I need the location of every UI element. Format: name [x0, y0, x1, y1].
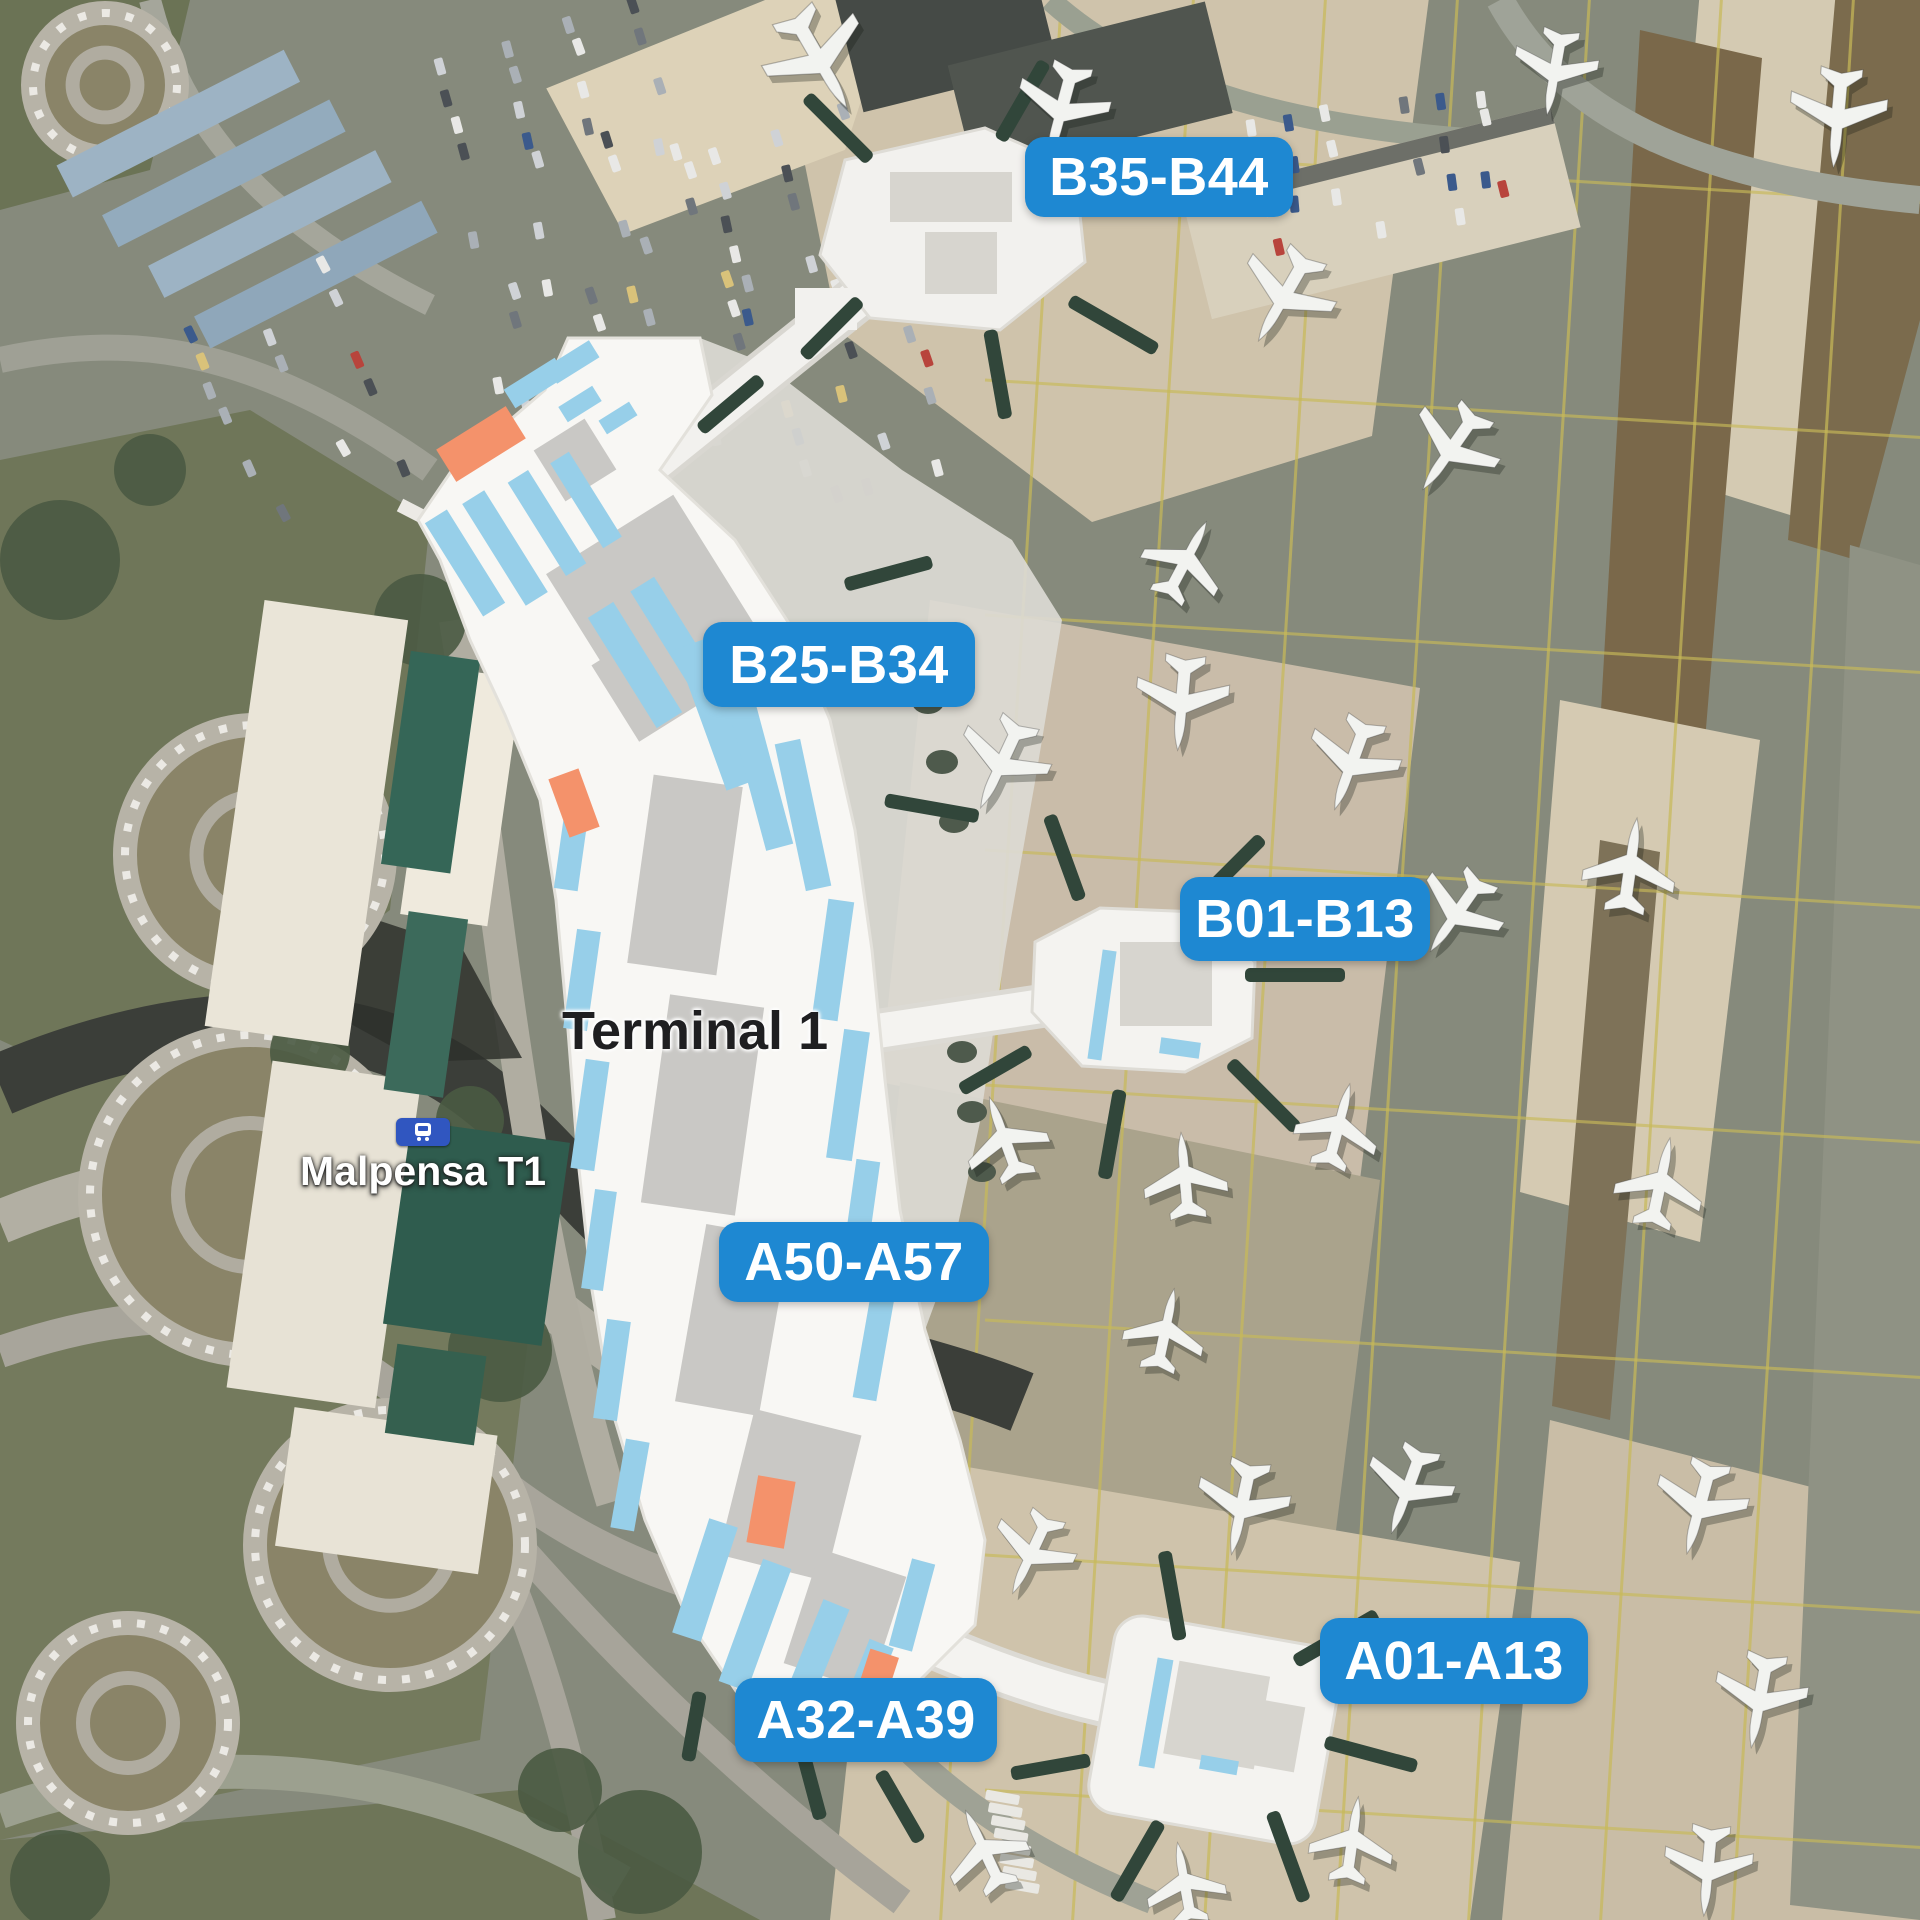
- gate-badge-label: A01-A13: [1344, 1630, 1564, 1692]
- gate-badge-label: B01-B13: [1195, 888, 1415, 950]
- station-label: Malpensa T1: [300, 1148, 546, 1195]
- map-canvas[interactable]: Terminal 1 Malpensa T1 B35-B44B25-B34B01…: [0, 0, 1920, 1920]
- gate-badge-A50-A57[interactable]: A50-A57: [719, 1222, 989, 1302]
- gate-badge-label: A32-A39: [756, 1689, 976, 1751]
- transit-train-icon: [396, 1118, 450, 1146]
- gate-badge-B35-B44[interactable]: B35-B44: [1025, 137, 1293, 217]
- station-malpensa-t1[interactable]: Malpensa T1: [300, 1118, 546, 1195]
- gate-badge-B01-B13[interactable]: B01-B13: [1180, 877, 1430, 961]
- gate-badge-A32-A39[interactable]: A32-A39: [735, 1678, 997, 1762]
- gate-badge-B25-B34[interactable]: B25-B34: [703, 622, 975, 707]
- gate-badge-label: B25-B34: [729, 634, 949, 696]
- gate-badge-label: B35-B44: [1049, 146, 1269, 208]
- gate-badge-label: A50-A57: [744, 1231, 964, 1293]
- gate-badge-A01-A13[interactable]: A01-A13: [1320, 1618, 1588, 1704]
- terminal-1-label: Terminal 1: [562, 1000, 828, 1062]
